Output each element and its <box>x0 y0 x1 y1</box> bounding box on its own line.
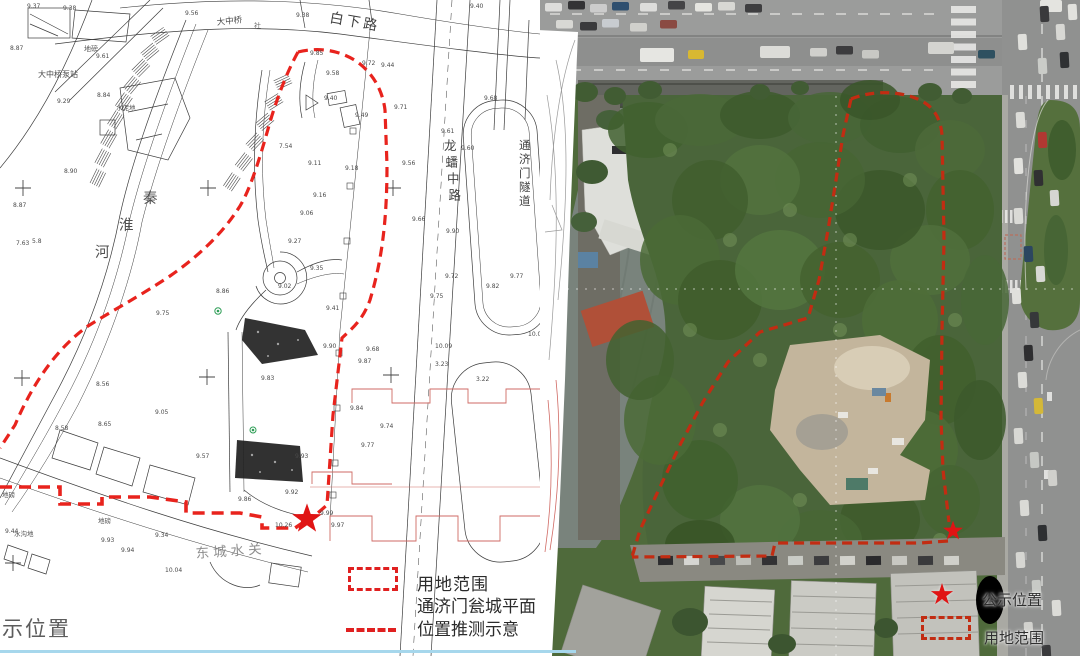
elevation-label: 9.49 <box>355 112 369 119</box>
elevation-label: 9.41 <box>326 305 340 312</box>
elevation-label: 9.57 <box>196 453 210 460</box>
map-label: 水沟地 <box>14 529 34 538</box>
elevation-label: 9.37 <box>27 3 41 10</box>
elevation-label: 9.74 <box>380 423 394 430</box>
elevation-label: 9.68 <box>366 346 380 353</box>
elevation-label: 9.68 <box>484 95 498 102</box>
elevation-label: 9.83 <box>261 375 275 382</box>
elevation-label: 9.87 <box>358 358 372 365</box>
photo-legend-star-icon: ★ <box>929 580 955 609</box>
elevation-label: 9.38 <box>296 12 310 19</box>
map-label: 大中桥泵站 <box>38 69 78 79</box>
elevation-label: 9.27 <box>288 238 302 245</box>
elevation-label: 8.58 <box>55 425 69 432</box>
elevation-label: 7.63 <box>16 240 30 247</box>
elevation-label: 9.77 <box>510 273 524 280</box>
elevation-label: 7.54 <box>279 143 293 150</box>
elevation-label: 10.04 <box>165 567 182 574</box>
elevation-label: 9.56 <box>185 10 199 17</box>
elevation-label: 9.18 <box>345 165 359 172</box>
elevation-label: 8.86 <box>216 288 230 295</box>
elevation-label: 3.22 <box>476 376 490 383</box>
bottom-blue-strip <box>0 650 576 653</box>
elevation-label: 9.75 <box>430 293 444 300</box>
elevation-label: 10.09 <box>435 343 452 350</box>
elevation-label: 9.06 <box>300 210 314 217</box>
elevation-label: 9.84 <box>350 405 364 412</box>
map-label: 通济门隧道 <box>519 138 531 208</box>
elevation-label: 9.90 <box>323 343 337 350</box>
photo-legend-boundary-symbol <box>921 616 971 640</box>
elevation-label: 9.66 <box>412 216 426 223</box>
elevation-label: 8.90 <box>64 168 78 175</box>
elevation-label: 9.60 <box>461 145 475 152</box>
legend-barbican-line-symbol <box>346 628 396 632</box>
elevation-label: 3.23 <box>435 361 449 368</box>
legend-land-use-boundary-symbol <box>348 567 398 591</box>
elevation-label: 9.29 <box>57 98 71 105</box>
map-label: 水泥地 <box>116 103 136 112</box>
elevation-label: 9.86 <box>238 496 252 503</box>
elevation-label: 9.11 <box>308 160 322 167</box>
elevation-label: 9.75 <box>156 310 170 317</box>
elevation-label: 8.56 <box>96 381 110 388</box>
elevation-label: 10.26 <box>275 522 292 529</box>
elevation-label: 9.44 <box>381 62 395 69</box>
map-label: 社 <box>254 21 261 30</box>
elevation-label: 9.85 <box>310 50 324 57</box>
elevation-label: 9.61 <box>96 53 110 60</box>
legend-barbican-label-line1: 通济门瓮城平面 <box>417 596 536 619</box>
map-label: 地磅 <box>2 490 16 499</box>
elevation-label: 9.72 <box>362 60 376 67</box>
elevation-label: 9.56 <box>402 160 416 167</box>
legend-land-use-label: 用地范围 <box>417 570 489 595</box>
elevation-label: 8.87 <box>10 45 24 52</box>
elevation-label: 9.61 <box>441 128 455 135</box>
elevation-label: 9.34 <box>155 532 169 539</box>
elevation-label: 9.71 <box>394 104 408 111</box>
corner-partial-label: 示位置 <box>2 613 71 643</box>
elevation-label: 9.97 <box>331 522 345 529</box>
photo-legend-star-label: 公示位置 <box>982 589 1042 610</box>
elevation-label: 9.99 <box>320 510 334 517</box>
elevation-label: 9.94 <box>121 547 135 554</box>
elevation-label: 9.16 <box>313 192 327 199</box>
photo-legend-boundary-label: 用地范围 <box>984 627 1044 648</box>
elevation-label: 9.82 <box>486 283 500 290</box>
elevation-label: 9.40 <box>324 95 338 102</box>
elevation-label: 10.01 <box>528 331 540 338</box>
elevation-label: 9.58 <box>326 70 340 77</box>
elevation-label: 9.35 <box>310 265 324 272</box>
elevation-label: 9.05 <box>155 409 169 416</box>
legend-barbican-label: 通济门瓮城平面 位置推测示意 <box>417 596 536 642</box>
public-notice-figure: 9.379.389.569.389.409.618.879.298.848.87… <box>0 0 1080 656</box>
map-label: 地磅 <box>98 516 112 525</box>
green-tarp <box>846 478 868 490</box>
legend-barbican-label-line2: 位置推测示意 <box>417 619 536 642</box>
map-label: 地磅 <box>84 44 98 53</box>
elevation-label: 9.77 <box>361 442 375 449</box>
elevation-label: 8.84 <box>97 92 111 99</box>
elevation-label: 8.87 <box>13 202 27 209</box>
elevation-label: 8.65 <box>98 421 112 428</box>
aerial-photo <box>540 0 1080 656</box>
elevation-label: 9.38 <box>63 5 77 12</box>
elevation-label: 9.40 <box>470 3 484 10</box>
elevation-label: 9.02 <box>278 283 292 290</box>
elevation-label: 9.93 <box>101 537 115 544</box>
elevation-label: 9.93 <box>295 453 309 460</box>
elevation-label: 9.90 <box>446 228 460 235</box>
blue-tarp <box>578 252 598 268</box>
site-plan-map: 9.379.389.569.389.409.618.879.298.848.87… <box>0 0 540 656</box>
elevation-label: 9.92 <box>285 489 299 496</box>
elevation-label: 9.72 <box>445 273 459 280</box>
elevation-label: 5.8 <box>32 238 42 245</box>
tree-area <box>606 80 1009 570</box>
